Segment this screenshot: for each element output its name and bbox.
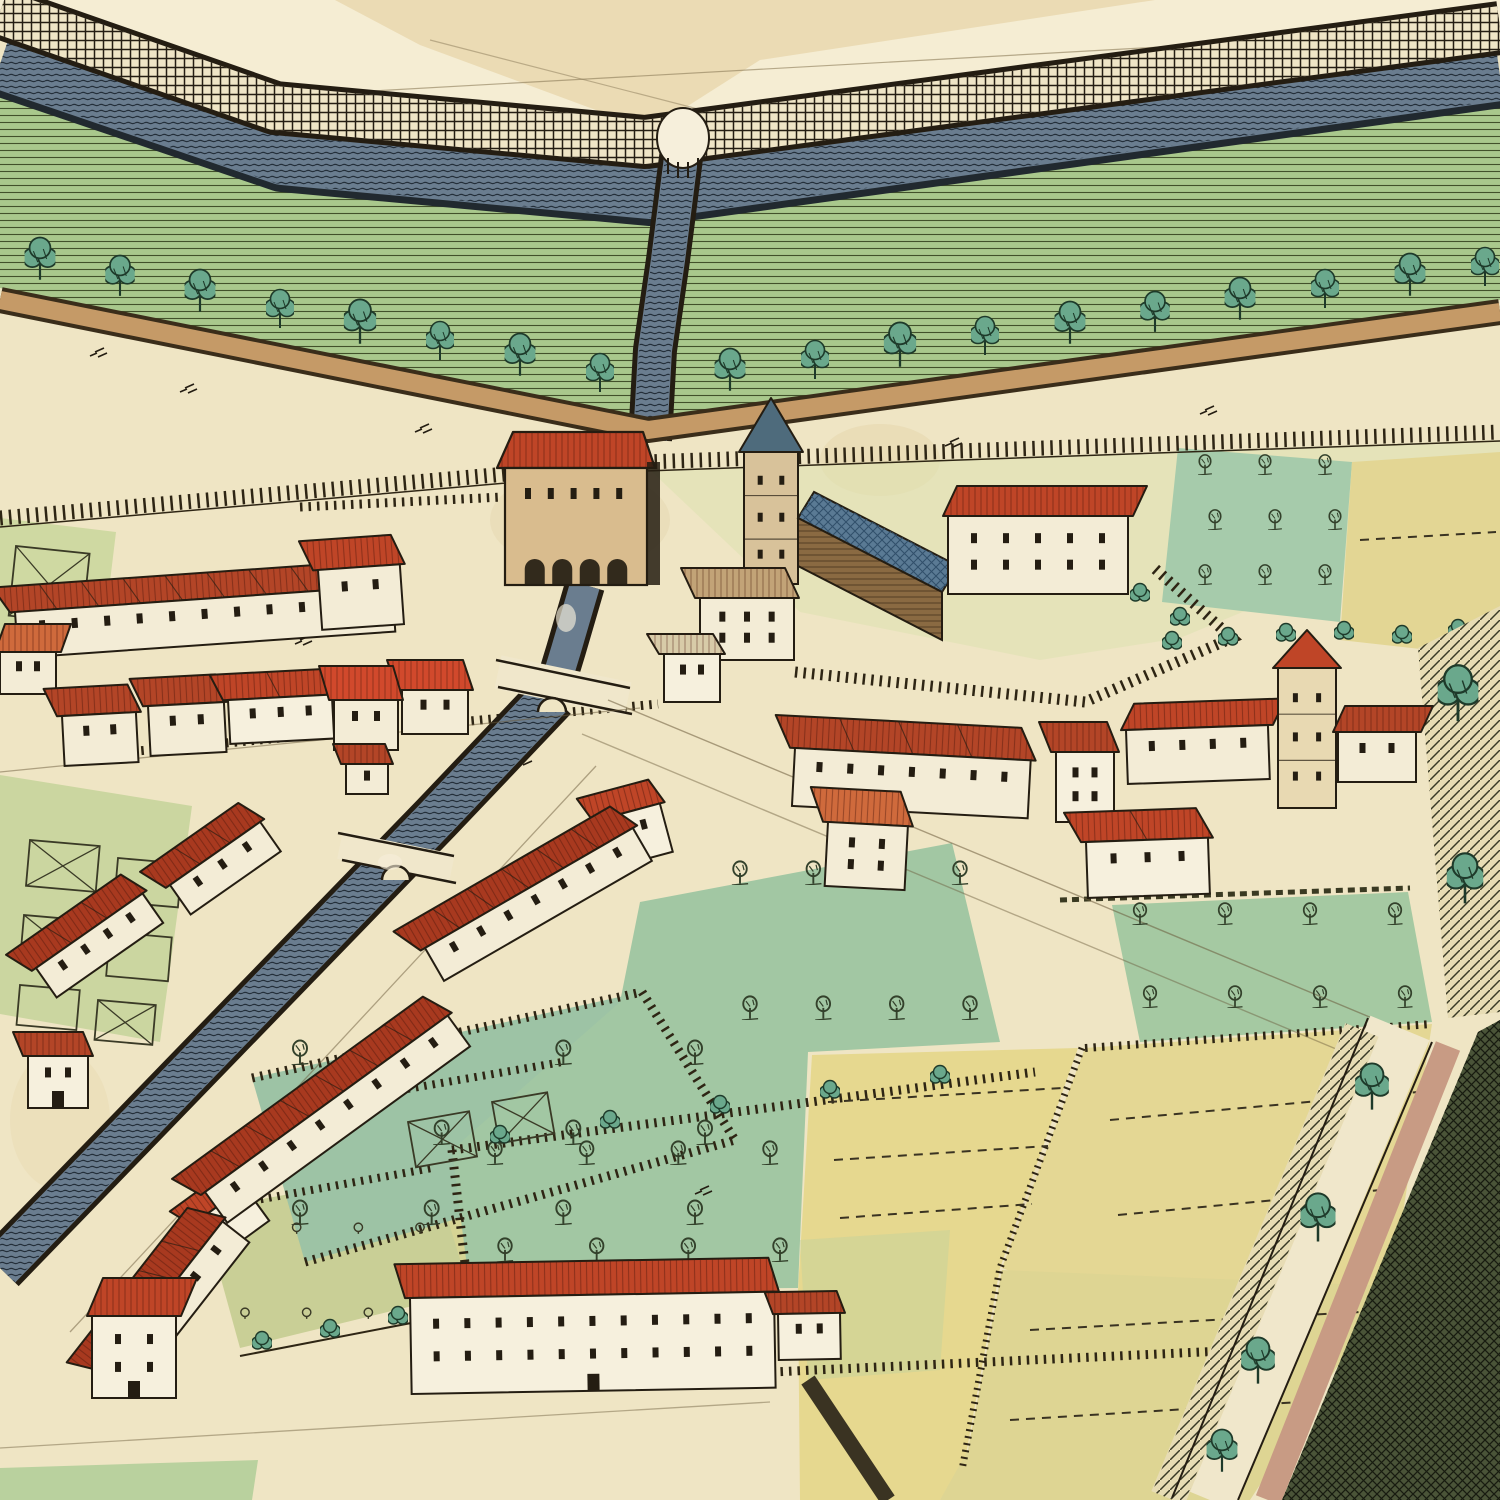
engraving-scene <box>0 0 1500 1500</box>
house-pair <box>210 668 339 744</box>
long-building <box>394 1258 780 1395</box>
foam <box>378 854 402 870</box>
church-hall <box>943 486 1147 594</box>
water-gate <box>497 432 660 585</box>
foam <box>556 604 576 632</box>
orchard-e <box>1112 892 1432 1042</box>
farm-hall <box>1120 698 1289 784</box>
farm-tower <box>1273 630 1341 808</box>
birds-eye-town-map <box>0 0 1500 1500</box>
house-pair <box>1064 808 1215 899</box>
waterfall <box>657 108 709 168</box>
map-canvas <box>0 0 1500 1500</box>
